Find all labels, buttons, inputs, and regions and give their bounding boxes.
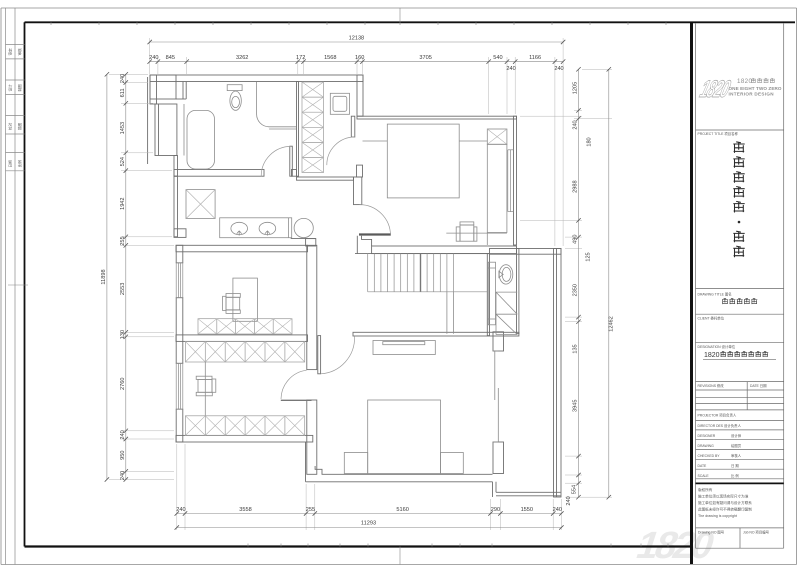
svg-text:11898: 11898 (101, 269, 107, 284)
svg-text:描图: 描图 (17, 122, 22, 130)
svg-text:绘图员: 绘图员 (731, 443, 742, 448)
svg-text:1550: 1550 (521, 507, 533, 513)
svg-text:审核人: 审核人 (731, 453, 742, 458)
svg-text:PROJECTOR 项目负责人: PROJECTOR 项目负责人 (698, 413, 737, 418)
svg-text:DATE: DATE (698, 464, 708, 468)
svg-text:240: 240 (120, 430, 126, 439)
svg-text:240: 240 (120, 74, 126, 83)
svg-text:240: 240 (554, 66, 563, 72)
svg-text:REVISIONS 修改: REVISIONS 修改 (698, 383, 725, 388)
svg-text:校对: 校对 (8, 122, 13, 130)
svg-text:524: 524 (120, 157, 126, 166)
svg-text:554: 554 (572, 485, 578, 494)
svg-text:SCALE: SCALE (698, 474, 710, 478)
svg-text:1166: 1166 (529, 55, 541, 61)
svg-text:1453: 1453 (120, 122, 126, 134)
svg-text:180: 180 (587, 137, 593, 146)
svg-text:比 例: 比 例 (731, 473, 739, 478)
svg-text:2350: 2350 (573, 284, 579, 296)
svg-text:The drawing is copyright: The drawing is copyright (698, 514, 737, 518)
svg-text:DRAWING TITLE 图名: DRAWING TITLE 图名 (698, 292, 732, 297)
svg-text:3262: 3262 (236, 55, 248, 61)
svg-text:2553: 2553 (120, 283, 126, 295)
svg-text:日期: 日期 (8, 160, 13, 168)
svg-text:CLIENT 委托单位: CLIENT 委托单位 (698, 316, 725, 321)
svg-text:135: 135 (573, 344, 579, 353)
svg-text:130: 130 (120, 330, 126, 339)
svg-text:此图纸未经许可不得转载翻印复制: 此图纸未经许可不得转载翻印复制 (698, 507, 752, 512)
svg-text:DATE 日期: DATE 日期 (750, 383, 767, 388)
svg-text:ONE EIGHT TWO ZERO: ONE EIGHT TWO ZERO (729, 86, 782, 91)
svg-text:240: 240 (149, 55, 158, 61)
svg-text:1820: 1820 (704, 352, 720, 359)
svg-text:540: 540 (493, 55, 502, 61)
svg-text:INTERIOR DESIGN: INTERIOR DESIGN (729, 92, 775, 97)
svg-text:PROJECT TITLE 项目名称: PROJECT TITLE 项目名称 (698, 131, 739, 136)
svg-text:制图: 制图 (17, 84, 22, 92)
svg-text:施工单位如有疑问请与设计方联系: 施工单位如有疑问请与设计方联系 (698, 500, 752, 505)
svg-text:3945: 3945 (573, 400, 579, 412)
svg-text:DESIGNER: DESIGNER (698, 434, 716, 438)
svg-text:11293: 11293 (361, 521, 376, 527)
svg-text:比例: 比例 (17, 160, 22, 168)
svg-text:设计师: 设计师 (731, 433, 742, 438)
svg-text:Drawing NO 图号: Drawing NO 图号 (698, 530, 725, 535)
svg-text:1205: 1205 (573, 82, 579, 94)
svg-text:950: 950 (120, 451, 126, 460)
svg-text:Job NO 项目编号: Job NO 项目编号 (743, 530, 770, 535)
svg-text:2988: 2988 (573, 180, 579, 192)
svg-text:1942: 1942 (120, 197, 126, 209)
svg-text:设计: 设计 (8, 84, 13, 92)
svg-text:1820: 1820 (737, 78, 753, 85)
svg-text:125: 125 (586, 252, 592, 261)
svg-text:240: 240 (120, 471, 126, 480)
svg-text:172: 172 (296, 55, 305, 61)
svg-text:240: 240 (176, 507, 185, 513)
svg-text:审定: 审定 (8, 48, 13, 56)
svg-text:12138: 12138 (349, 36, 365, 42)
svg-text:DESIGNATION 设计单位: DESIGNATION 设计单位 (698, 344, 736, 349)
svg-text:255: 255 (306, 507, 315, 513)
svg-text:240: 240 (566, 496, 572, 505)
svg-text:施工单位须以现场实际尺寸为准: 施工单位须以现场实际尺寸为准 (698, 494, 749, 499)
svg-text:版权所有: 版权所有 (698, 487, 713, 492)
svg-text:240: 240 (573, 120, 579, 129)
svg-text:12462: 12462 (609, 316, 615, 332)
svg-text:2760: 2760 (120, 378, 126, 390)
svg-text:490: 490 (573, 235, 579, 244)
svg-text:3558: 3558 (239, 507, 251, 513)
svg-text:845: 845 (166, 55, 175, 61)
svg-text:DRAWING: DRAWING (698, 444, 715, 448)
svg-text:3705: 3705 (419, 55, 431, 61)
svg-text:160: 160 (355, 55, 364, 61)
svg-text:611: 611 (120, 88, 126, 97)
svg-text:DIRECTOR DES 设计负责人: DIRECTOR DES 设计负责人 (698, 423, 742, 428)
svg-text:审核: 审核 (17, 48, 22, 56)
svg-text:1568: 1568 (324, 55, 336, 61)
svg-text:CHECKED BY: CHECKED BY (698, 454, 721, 458)
svg-text:255: 255 (120, 236, 126, 245)
svg-text:240: 240 (506, 66, 515, 72)
svg-text:290: 290 (491, 507, 500, 513)
svg-text:日 期: 日 期 (731, 463, 739, 468)
svg-text:5160: 5160 (396, 507, 408, 513)
svg-text:240: 240 (553, 507, 562, 513)
